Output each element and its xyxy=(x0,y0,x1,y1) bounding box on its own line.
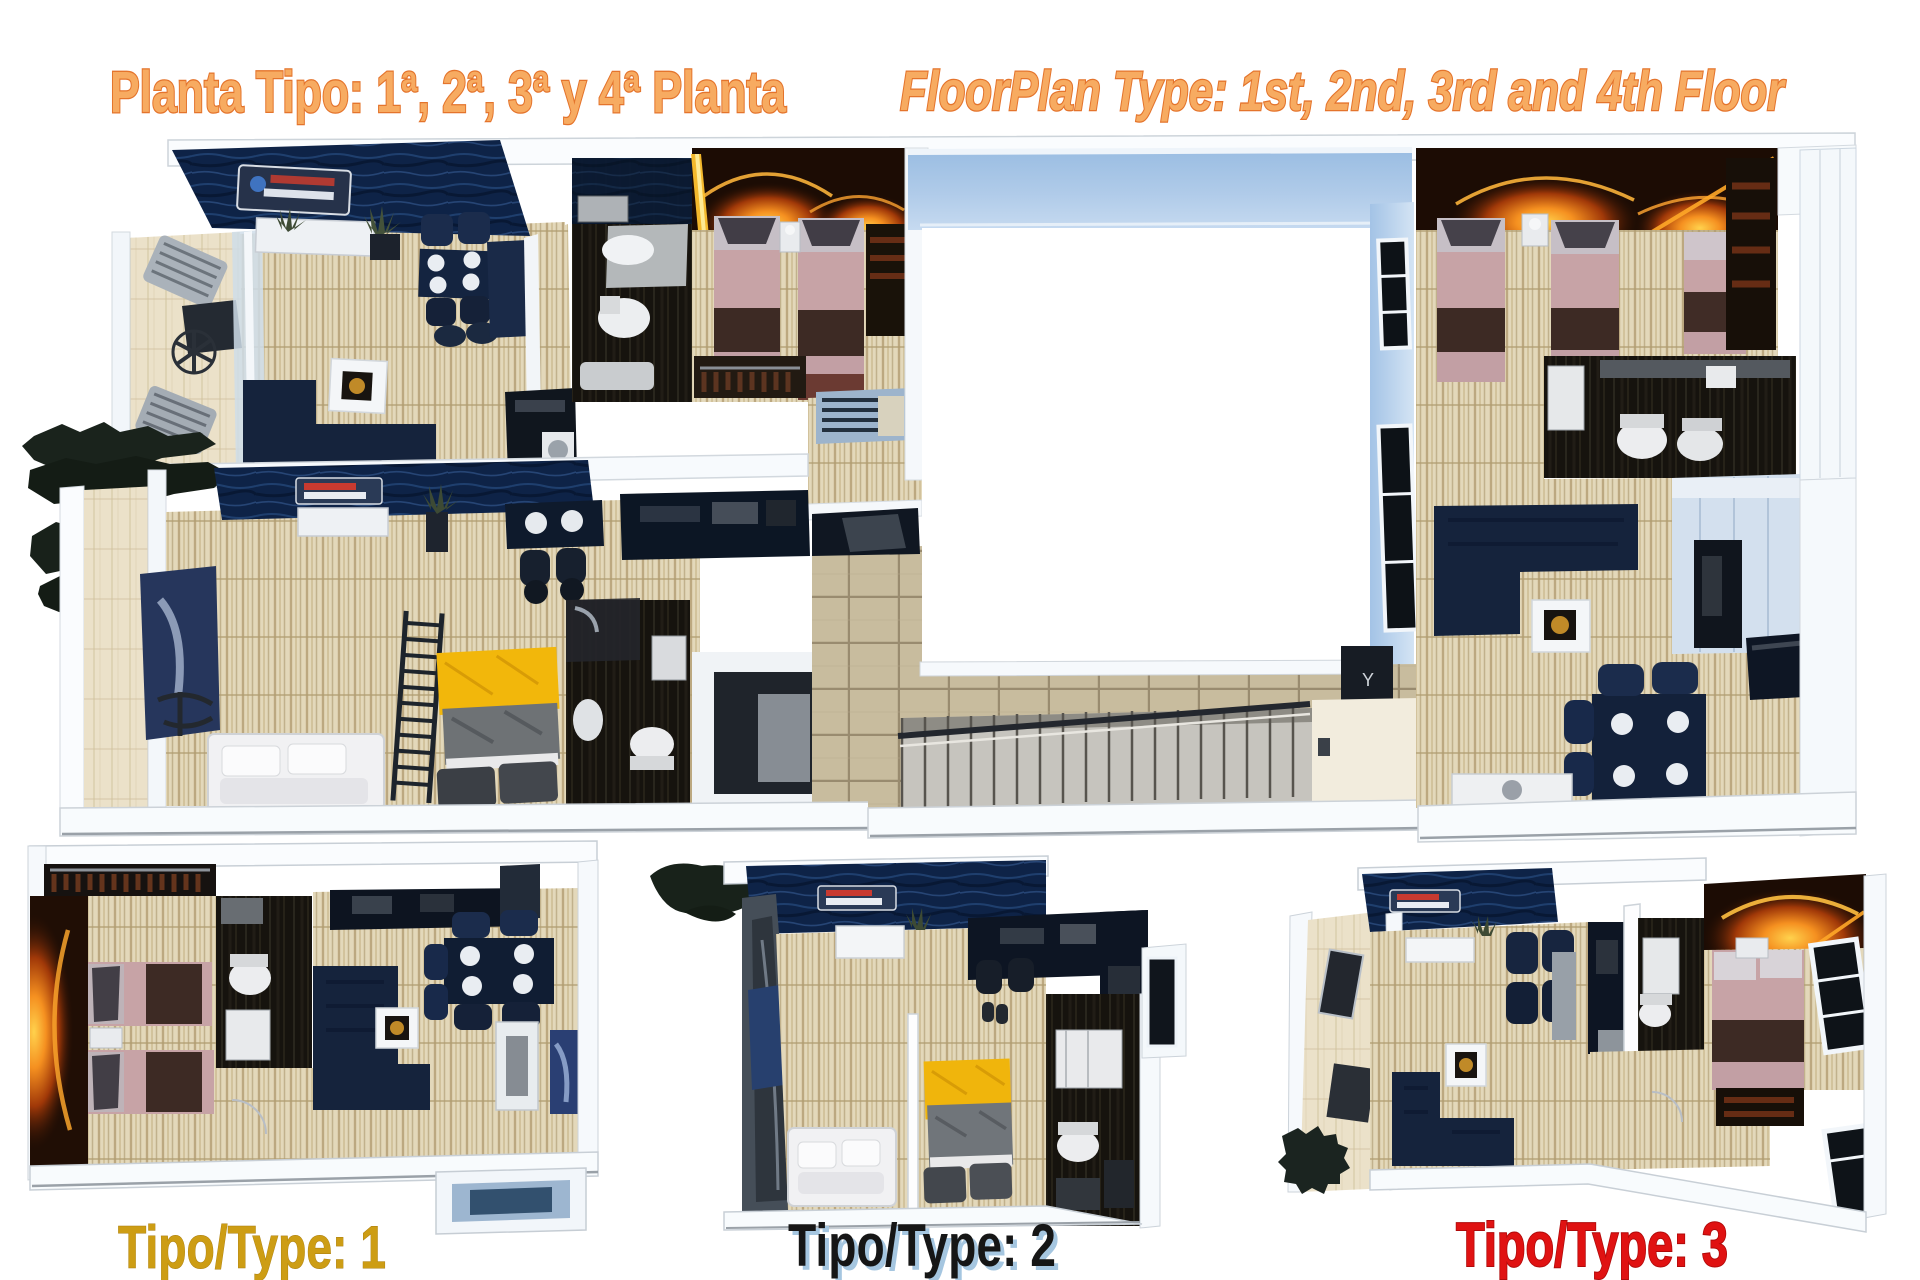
svg-text:FloorPlan Type: 1st, 2nd, 3rd: FloorPlan Type: 1st, 2nd, 3rd and 4th Fl… xyxy=(900,59,1786,122)
svg-text:Tipo/Type: 2: Tipo/Type: 2 xyxy=(788,1212,1056,1279)
svg-text:Planta Tipo: 1ª, 2ª, 3ª y 4ª P: Planta Tipo: 1ª, 2ª, 3ª y 4ª Planta xyxy=(110,60,787,125)
svg-text:Y: Y xyxy=(1362,670,1374,690)
svg-text:Tipo/Type: 3: Tipo/Type: 3 xyxy=(1456,1211,1728,1280)
svg-text:Tipo/Type: 1: Tipo/Type: 1 xyxy=(118,1214,386,1280)
